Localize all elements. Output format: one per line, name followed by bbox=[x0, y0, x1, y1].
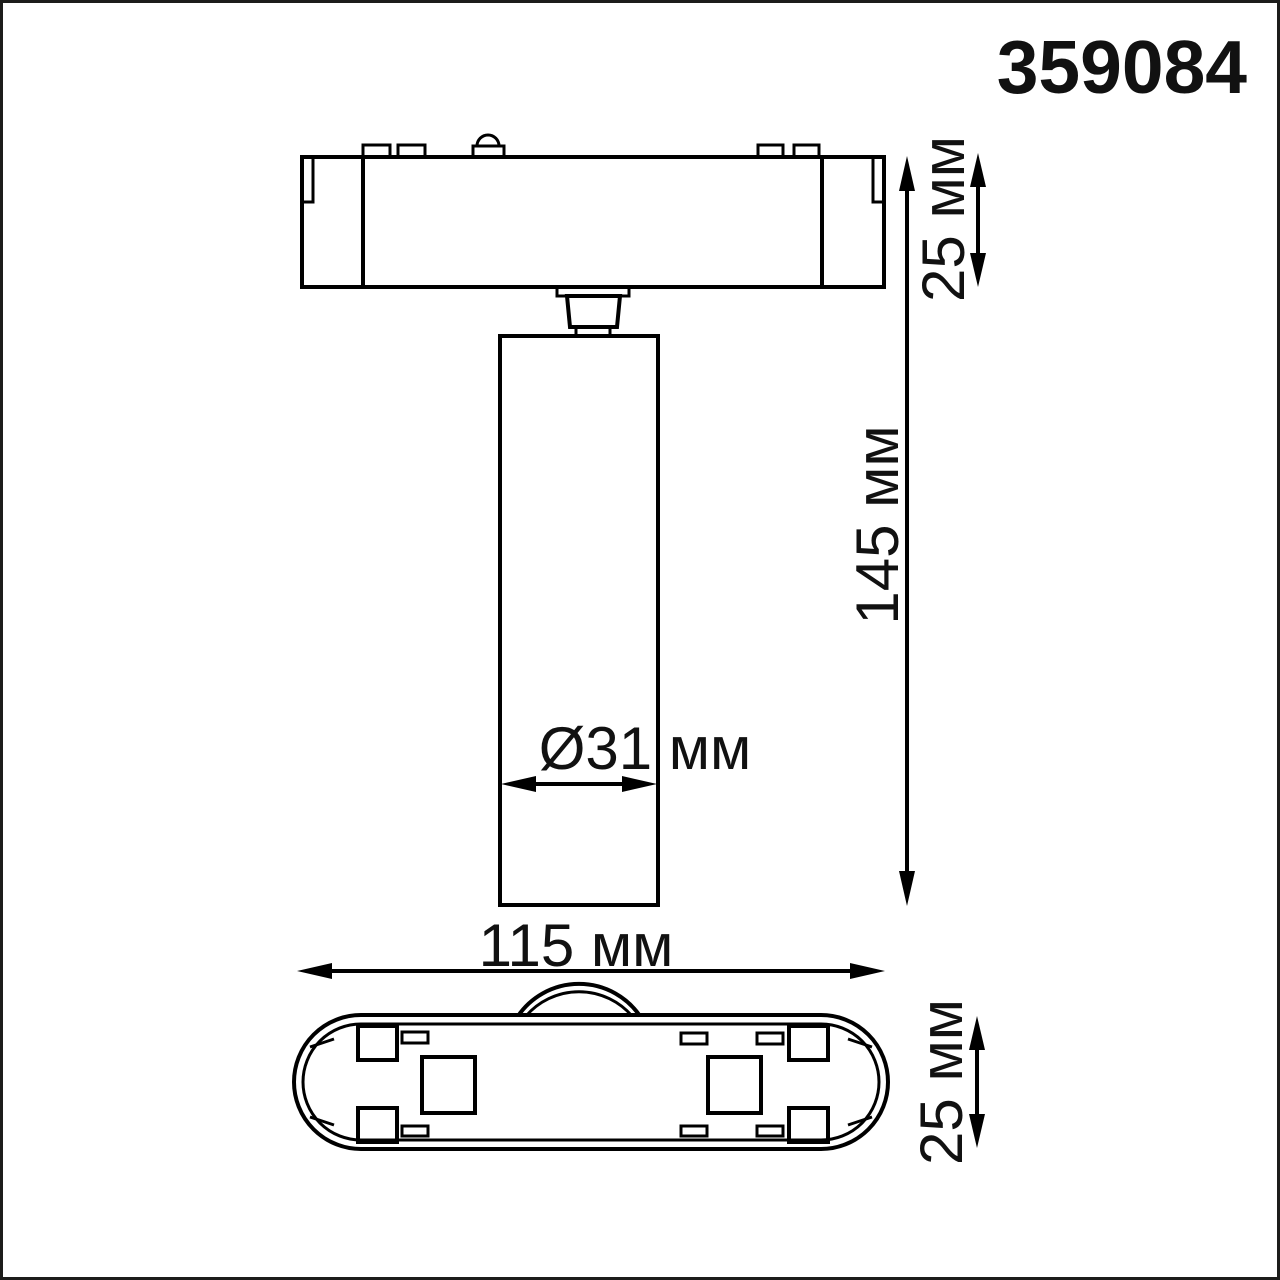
dim-base-height: 25 мм bbox=[908, 999, 985, 1165]
dim-label-spot-diameter: Ø31 мм bbox=[539, 715, 752, 782]
bottom-outline-outer bbox=[294, 1015, 888, 1149]
dim-label-base-height: 25 мм bbox=[908, 999, 975, 1165]
dim-overall-height-arrow-down bbox=[899, 871, 915, 906]
dim-overall-height: 145 мм bbox=[844, 156, 915, 906]
dim-label-overall-height: 145 мм bbox=[844, 425, 911, 624]
bottom-pad-top-right bbox=[757, 1033, 783, 1044]
bottom-pad-top-mid-right bbox=[681, 1033, 707, 1044]
dim-adapter-height: 25 мм bbox=[910, 136, 986, 302]
bottom-clamp-top-left bbox=[358, 1026, 397, 1060]
front-view bbox=[302, 135, 884, 905]
dim-spot-diameter-arrow-left bbox=[501, 776, 536, 792]
bottom-pad-top-left bbox=[402, 1032, 428, 1043]
dim-spot-diameter: Ø31 мм bbox=[501, 715, 751, 792]
dimension-annotations: 25 мм 145 мм Ø31 мм 115 мм bbox=[297, 136, 986, 1165]
bottom-pad-bottom-left bbox=[402, 1126, 428, 1136]
spot-cylinder bbox=[500, 336, 658, 905]
bottom-clamp-bottom-left bbox=[358, 1108, 397, 1142]
bottom-outline-inner bbox=[303, 1024, 879, 1140]
stem-block bbox=[567, 296, 620, 327]
bottom-pad-bottom-mid-right bbox=[681, 1126, 707, 1136]
track-adapter-body bbox=[302, 157, 884, 287]
bottom-magnet-left bbox=[422, 1057, 475, 1113]
dim-overall-width-arrow-left bbox=[297, 963, 332, 979]
bottom-view bbox=[294, 984, 888, 1149]
bottom-lock-arc-outer bbox=[518, 984, 640, 1016]
adapter-dome-button bbox=[477, 135, 499, 146]
bottom-pad-bottom-right bbox=[757, 1126, 783, 1136]
technical-drawing-page: 25 мм 145 мм Ø31 мм 115 мм bbox=[0, 0, 1280, 1280]
dim-overall-width-arrow-right bbox=[850, 963, 885, 979]
bottom-clamp-bottom-right bbox=[789, 1108, 828, 1142]
product-code: 359084 bbox=[997, 25, 1248, 109]
bottom-clamp-top-right bbox=[789, 1026, 828, 1060]
dim-overall-width: 115 мм bbox=[297, 912, 885, 979]
dim-label-adapter-height: 25 мм bbox=[910, 136, 977, 302]
bottom-magnet-right bbox=[708, 1057, 761, 1113]
drawing-canvas: 25 мм 145 мм Ø31 мм 115 мм bbox=[3, 3, 1277, 1277]
dim-label-overall-width: 115 мм bbox=[479, 912, 674, 979]
